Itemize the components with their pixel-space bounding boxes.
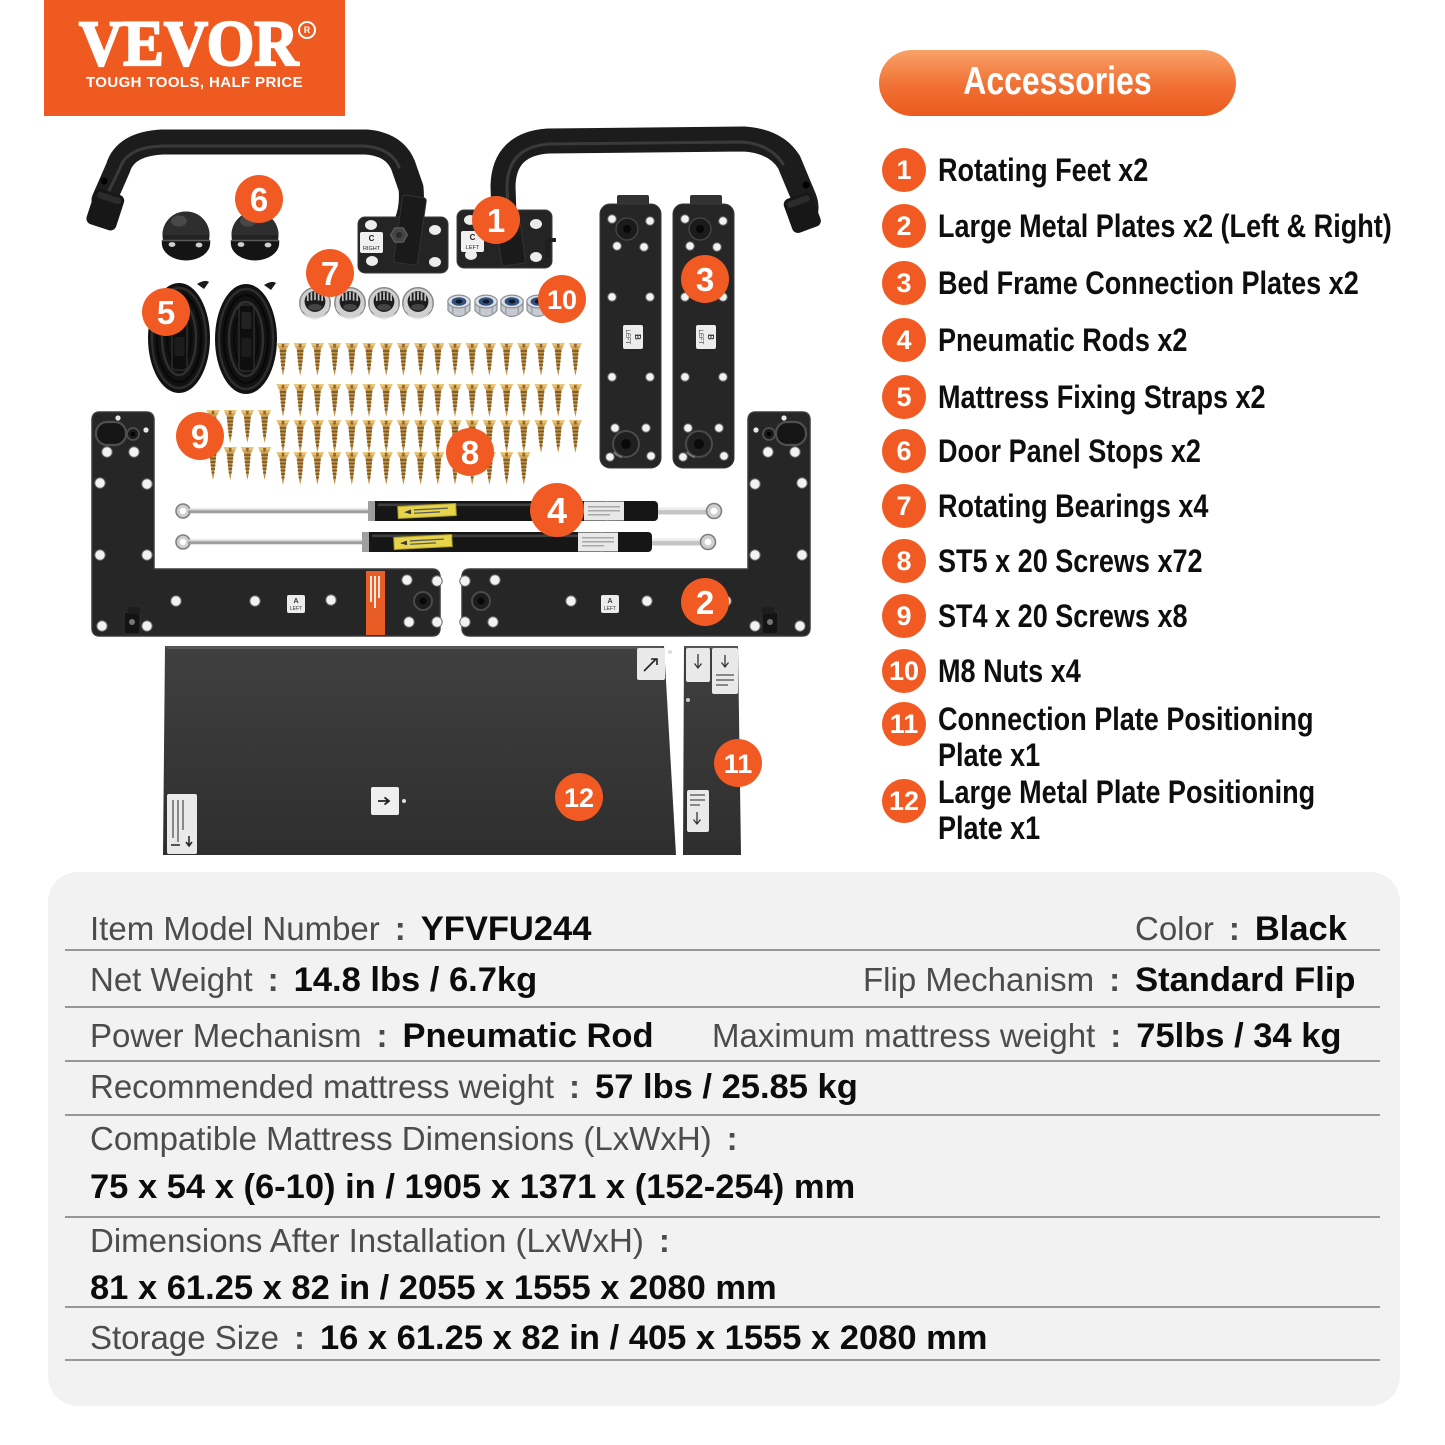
svg-text:9: 9: [191, 418, 209, 455]
svg-text:RIGHT: RIGHT: [363, 246, 381, 252]
svg-text:4: 4: [547, 490, 567, 531]
svg-text:1: 1: [487, 202, 505, 239]
svg-text:LEFT: LEFT: [697, 330, 703, 345]
svg-text:12: 12: [564, 783, 594, 813]
svg-text:11: 11: [724, 749, 753, 779]
svg-text:B: B: [706, 334, 715, 340]
svg-text:LEFT: LEFT: [466, 245, 480, 251]
svg-text:8: 8: [461, 434, 479, 471]
svg-text:5: 5: [157, 294, 175, 331]
svg-text:LEFT: LEFT: [604, 606, 616, 612]
svg-text:7: 7: [321, 255, 339, 292]
svg-text:LEFT: LEFT: [290, 606, 302, 612]
svg-text:10: 10: [547, 285, 577, 315]
svg-text:C: C: [369, 234, 375, 243]
svg-text:A: A: [607, 598, 612, 605]
svg-text:3: 3: [696, 261, 714, 298]
svg-text:6: 6: [250, 181, 268, 218]
svg-text:LEFT: LEFT: [624, 330, 630, 345]
svg-text:A: A: [293, 598, 298, 605]
svg-text:2: 2: [696, 584, 714, 621]
svg-text:B: B: [633, 334, 642, 340]
svg-text:C: C: [470, 233, 476, 242]
